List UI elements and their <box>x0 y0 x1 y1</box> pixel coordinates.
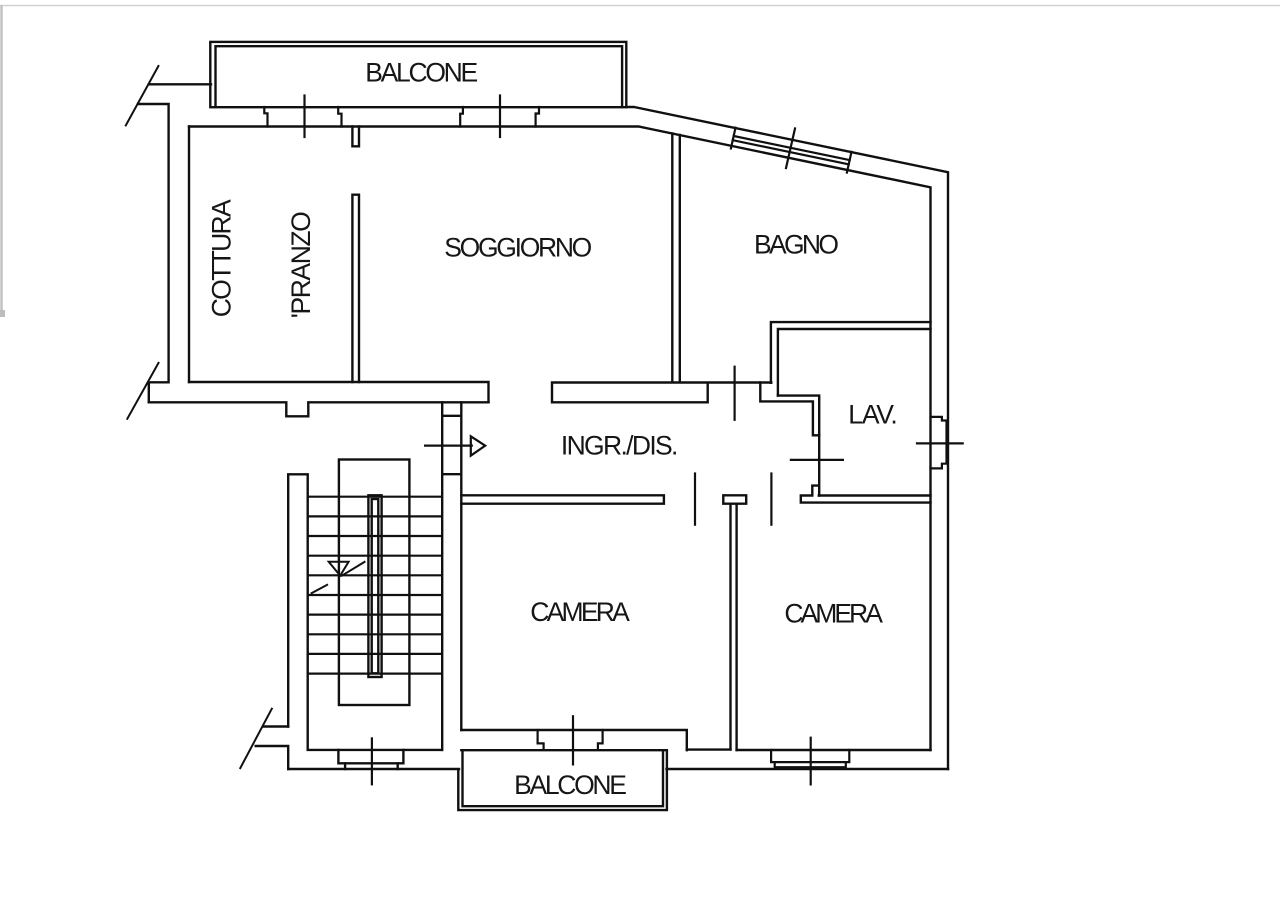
svg-text:BAGNO: BAGNO <box>754 230 839 260</box>
svg-text:BALCONE: BALCONE <box>514 770 627 800</box>
svg-text:'PRANZO: 'PRANZO <box>286 211 316 318</box>
svg-text:LAV.: LAV. <box>848 400 897 430</box>
svg-text:CAMERA: CAMERA <box>784 599 883 629</box>
svg-text:COTTURA: COTTURA <box>207 199 237 317</box>
svg-text:INGR./DIS.: INGR./DIS. <box>561 430 679 460</box>
svg-text:SOGGIORNO: SOGGIORNO <box>444 233 592 263</box>
svg-text:BALCONE: BALCONE <box>365 57 478 87</box>
svg-text:CAMERA: CAMERA <box>530 597 630 627</box>
